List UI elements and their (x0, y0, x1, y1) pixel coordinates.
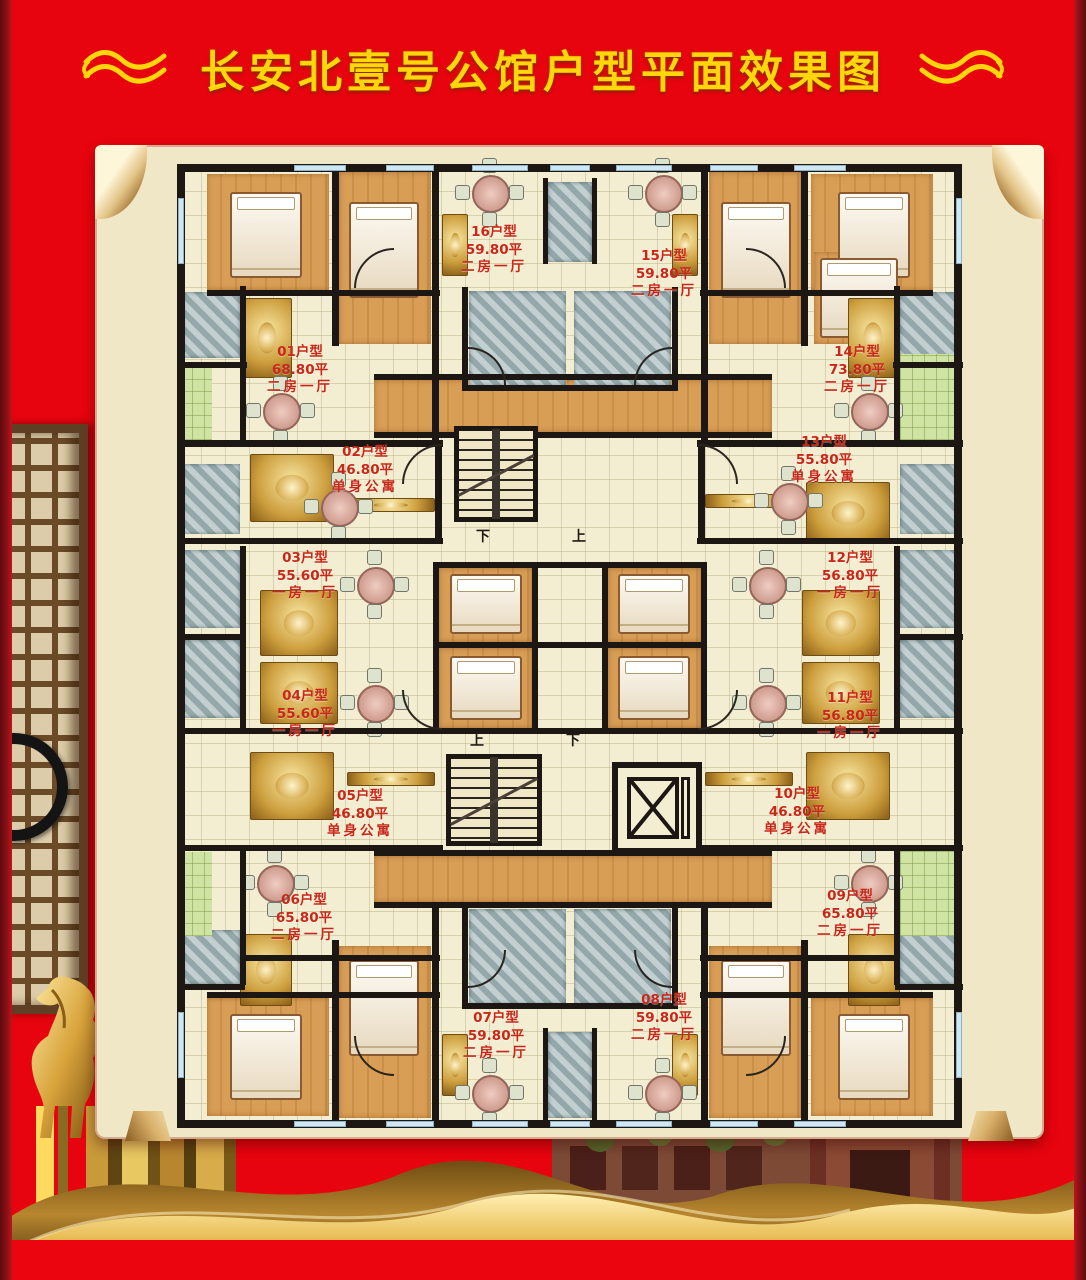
chair-icon (340, 577, 355, 592)
chair-icon (304, 499, 319, 514)
unit-name: 11户型 (817, 690, 883, 708)
bed-icon (838, 1014, 910, 1100)
wall (543, 1028, 548, 1120)
bathroom-tile (900, 292, 957, 358)
unit-area: 59.80平 (461, 242, 527, 260)
chair-icon (367, 604, 382, 619)
window (550, 165, 590, 171)
window (472, 165, 528, 171)
unit-label: 13户型55.80平单身公寓 (791, 434, 857, 487)
wall (897, 634, 963, 640)
unit-label: 16户型59.80平二房一厅 (461, 224, 527, 277)
wall (374, 374, 772, 380)
elevator-counterweight (681, 777, 690, 839)
bed-icon (230, 192, 302, 278)
window (472, 1121, 528, 1127)
dining-table-icon (357, 567, 395, 605)
window (616, 1121, 672, 1127)
unit-label: 09户型65.80平二房一厅 (817, 888, 883, 941)
wall (697, 538, 963, 544)
unit-name: 02户型 (332, 444, 398, 462)
elevator-shaft (612, 762, 702, 854)
unit-layout: 二房一厅 (817, 923, 883, 941)
dining-table-icon (645, 1075, 683, 1113)
unit-label: 05户型46.80平单身公寓 (327, 788, 393, 841)
unit-area: 46.80平 (764, 804, 830, 822)
unit-layout: 一房一厅 (272, 585, 338, 603)
unit-layout: 一房一厅 (817, 725, 883, 743)
wall (700, 992, 933, 998)
chair-icon (246, 403, 261, 418)
chair-icon (682, 185, 697, 200)
chair-icon (367, 550, 382, 565)
chair-icon (682, 1085, 697, 1100)
window (956, 1012, 962, 1078)
wall (242, 955, 440, 961)
unit-name: 06户型 (271, 892, 337, 910)
gold-furniture-icon (347, 772, 435, 786)
wall (432, 164, 439, 440)
chair-icon (628, 1085, 643, 1100)
window (550, 1121, 590, 1127)
dining-table-icon (645, 175, 683, 213)
unit-layout: 一房一厅 (272, 723, 338, 741)
wall (895, 984, 963, 990)
dining-table-icon (851, 393, 889, 431)
bed-icon (618, 574, 690, 634)
page-title: 长安北壹号公馆户型平面效果图 (200, 36, 886, 100)
wall (432, 904, 439, 1122)
lower-stairwell (446, 754, 542, 846)
chair-icon (455, 185, 470, 200)
unit-layout: 一房一厅 (817, 585, 883, 603)
chair-icon (781, 520, 796, 535)
chair-icon (455, 1085, 470, 1100)
unit-area: 46.80平 (327, 806, 393, 824)
window (386, 165, 434, 171)
dining-table-icon (472, 175, 510, 213)
wall (592, 1028, 597, 1120)
unit-label: 11户型56.80平一房一厅 (817, 690, 883, 743)
floorplan-parchment: 下 上 上 下 01户型68.80平二房一厅02户型46.80平单身公寓03户型… (95, 145, 1044, 1139)
chair-icon (808, 493, 823, 508)
chair-icon (509, 1085, 524, 1100)
unit-layout: 单身公寓 (327, 823, 393, 841)
bed-icon (450, 574, 522, 634)
chair-icon (340, 695, 355, 710)
bathroom-tile (900, 464, 957, 534)
unit-label: 04户型55.60平一房一厅 (272, 688, 338, 741)
unit-area: 65.80平 (817, 906, 883, 924)
floor-plan: 下 上 上 下 01户型68.80平二房一厅02户型46.80平单身公寓03户型… (2, 2, 1086, 1280)
dining-table-icon (771, 483, 809, 521)
unit-name: 12户型 (817, 550, 883, 568)
lower-stair-label: 上 下 (436, 730, 546, 750)
window (794, 1121, 846, 1127)
wall (543, 178, 548, 264)
unit-label: 10户型46.80平单身公寓 (764, 786, 830, 839)
bedroom-wood-floor (374, 856, 772, 902)
wall (177, 634, 243, 640)
unit-name: 07户型 (463, 1010, 529, 1028)
window (710, 165, 758, 171)
unit-layout: 单身公寓 (332, 479, 398, 497)
bathroom-tile (183, 292, 240, 358)
swirl-flourish-icon (916, 46, 1008, 90)
unit-name: 01户型 (267, 344, 333, 362)
unit-layout: 二房一厅 (463, 1045, 529, 1063)
window (616, 165, 672, 171)
unit-area: 56.80平 (817, 568, 883, 586)
bed-icon (618, 656, 690, 720)
balcony-green-tile (900, 848, 956, 936)
wall (332, 940, 339, 1122)
wall (433, 562, 707, 568)
wall (332, 164, 339, 346)
unit-layout: 二房一厅 (631, 1027, 697, 1045)
unit-label: 15户型59.80平二房一厅 (631, 248, 697, 301)
unit-name: 08户型 (631, 992, 697, 1010)
upper-stair-label: 下 上 (442, 526, 552, 546)
unit-name: 15户型 (631, 248, 697, 266)
bed-icon (230, 1014, 302, 1100)
gold-furniture-icon (806, 482, 890, 544)
swirl-flourish-icon (78, 46, 170, 90)
bathroom-tile (900, 550, 957, 628)
wall (592, 178, 597, 264)
unit-area: 68.80平 (267, 362, 333, 380)
wall (532, 562, 538, 734)
bathroom-tile (183, 550, 240, 628)
unit-layout: 二房一厅 (267, 379, 333, 397)
window (386, 1121, 434, 1127)
poster-canvas: { "title": { "text": "长安北壹号公馆户型平面效果图", "… (0, 0, 1086, 1280)
chair-icon (300, 403, 315, 418)
chair-icon (759, 550, 774, 565)
wall (207, 992, 440, 998)
bathroom-tile (183, 640, 240, 718)
window (794, 165, 846, 171)
chair-icon (786, 695, 801, 710)
unit-label: 03户型55.60平一房一厅 (272, 550, 338, 603)
wall (602, 562, 608, 734)
wall (701, 164, 708, 440)
unit-name: 03户型 (272, 550, 338, 568)
unit-label: 07户型59.80平二房一厅 (463, 1010, 529, 1063)
wall (462, 385, 678, 391)
chair-icon (759, 604, 774, 619)
wall (893, 362, 963, 368)
unit-area: 55.60平 (272, 568, 338, 586)
chair-icon (509, 185, 524, 200)
wall (801, 940, 808, 1122)
bathroom-tile (900, 640, 957, 718)
wall (374, 432, 772, 438)
bathroom-tile (900, 930, 957, 984)
bathroom-tile (548, 182, 592, 262)
unit-area: 73.80平 (824, 362, 890, 380)
chair-icon (394, 577, 409, 592)
bathroom-tile (183, 930, 240, 984)
chair-icon (834, 403, 849, 418)
chair-icon (367, 668, 382, 683)
unit-label: 06户型65.80平二房一厅 (271, 892, 337, 945)
wall (894, 845, 900, 985)
wall (801, 164, 808, 346)
unit-name: 04户型 (272, 688, 338, 706)
wall (433, 642, 707, 648)
unit-layout: 二房一厅 (824, 379, 890, 397)
window (710, 1121, 758, 1127)
unit-label: 14户型73.80平二房一厅 (824, 344, 890, 397)
unit-layout: 二房一厅 (631, 283, 697, 301)
unit-layout: 二房一厅 (271, 927, 337, 945)
window (178, 1012, 184, 1078)
chair-icon (358, 499, 373, 514)
unit-label: 08户型59.80平二房一厅 (631, 992, 697, 1045)
unit-area: 55.80平 (791, 452, 857, 470)
unit-area: 59.80平 (631, 1010, 697, 1028)
chair-icon (655, 1058, 670, 1073)
wall (240, 845, 246, 985)
elevator-cab-icon (627, 777, 679, 839)
window (956, 198, 962, 264)
chair-icon (294, 875, 309, 890)
wall (374, 850, 772, 856)
right-maroon-edge (1074, 0, 1086, 1280)
unit-name: 16户型 (461, 224, 527, 242)
left-maroon-edge (0, 0, 12, 1280)
wall (177, 538, 443, 544)
unit-label: 01户型68.80平二房一厅 (267, 344, 333, 397)
bathroom-tile (548, 1032, 592, 1118)
window (294, 165, 346, 171)
unit-area: 65.80平 (271, 910, 337, 928)
wall (177, 440, 443, 447)
chair-icon (732, 577, 747, 592)
window (294, 1121, 346, 1127)
bathroom-tile (183, 464, 240, 534)
unit-name: 14户型 (824, 344, 890, 362)
unit-label: 12户型56.80平一房一厅 (817, 550, 883, 603)
bed-icon (450, 656, 522, 720)
dining-table-icon (263, 393, 301, 431)
dining-table-icon (749, 567, 787, 605)
dining-table-icon (357, 685, 395, 723)
wall (177, 362, 247, 368)
unit-name: 09户型 (817, 888, 883, 906)
chair-icon (786, 577, 801, 592)
unit-layout: 单身公寓 (791, 469, 857, 487)
unit-name: 10户型 (764, 786, 830, 804)
chair-icon (655, 212, 670, 227)
unit-area: 59.80平 (463, 1028, 529, 1046)
unit-name: 13户型 (791, 434, 857, 452)
chair-icon (628, 185, 643, 200)
unit-layout: 二房一厅 (461, 259, 527, 277)
header: 长安北壹号公馆户型平面效果图 (0, 30, 1086, 106)
wall (177, 984, 245, 990)
unit-label: 02户型46.80平单身公寓 (332, 444, 398, 497)
chair-icon (754, 493, 769, 508)
dining-table-icon (749, 685, 787, 723)
window (178, 198, 184, 264)
unit-area: 59.80平 (631, 266, 697, 284)
chair-icon (759, 668, 774, 683)
unit-area: 55.60平 (272, 706, 338, 724)
wall (701, 904, 708, 1122)
unit-layout: 单身公寓 (764, 821, 830, 839)
unit-area: 46.80平 (332, 462, 398, 480)
unit-area: 56.80平 (817, 708, 883, 726)
dining-table-icon (472, 1075, 510, 1113)
unit-name: 05户型 (327, 788, 393, 806)
upper-stairwell (454, 426, 538, 522)
wall (700, 955, 898, 961)
gold-furniture-icon (250, 752, 334, 820)
gold-furniture-icon (705, 772, 793, 786)
